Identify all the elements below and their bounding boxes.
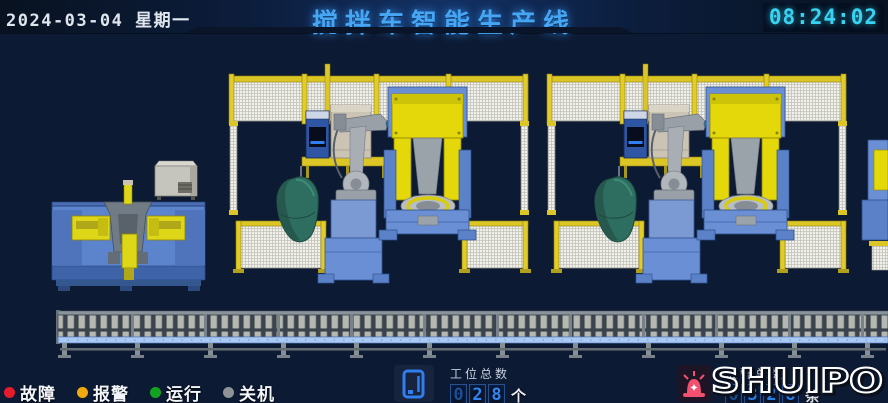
off-status-icon xyxy=(223,387,234,398)
frame-clamping-station xyxy=(52,180,205,291)
production-line-scene xyxy=(0,0,888,403)
control-cabinet xyxy=(155,161,197,200)
counter-unit: 个 xyxy=(511,385,526,403)
conveyor-legs xyxy=(58,343,874,358)
running-status-icon xyxy=(150,387,161,398)
legend-item-running: 运行 xyxy=(150,380,202,403)
counter-digit: 2 xyxy=(469,384,486,403)
terminal-icon xyxy=(394,365,434,402)
counter-digit: 0 xyxy=(450,384,467,403)
header-bar: 2024-03-04 星期一 搅拌车智能生产线 08:24:02 xyxy=(0,0,888,34)
logo-text: SHUIPO xyxy=(711,362,883,400)
partial-station-right xyxy=(862,140,888,270)
welding-cell-2 xyxy=(547,64,849,283)
alarm-status-icon xyxy=(77,387,88,398)
roller-conveyor xyxy=(56,310,888,358)
status-legend: 故障 报警 运行 关机 xyxy=(4,380,275,403)
legend-item-off: 关机 xyxy=(223,380,275,403)
station-counter-label: 工位总数 xyxy=(450,365,526,382)
legend-label: 运行 xyxy=(166,380,202,403)
counter-digit: 8 xyxy=(488,384,505,403)
clock-display: 08:24:02 xyxy=(763,3,884,32)
conveyor-rail xyxy=(58,337,888,343)
conveyor-rollers xyxy=(58,315,888,337)
shuipo-logo: SHUIPO SHUIPO xyxy=(708,362,888,402)
alarm-beacon-icon xyxy=(677,365,711,402)
conveyor-top-rail xyxy=(58,311,888,315)
legend-label: 报警 xyxy=(93,380,129,403)
clamp-left xyxy=(72,216,110,240)
legend-item-fault: 故障 xyxy=(4,380,56,403)
conveyor-seams xyxy=(131,314,864,338)
fault-status-icon xyxy=(4,387,15,398)
legend-label: 关机 xyxy=(239,380,275,403)
station-counter: 工位总数 0 2 8 个 xyxy=(394,365,526,403)
clamp-right xyxy=(147,216,185,240)
production-line-dashboard: 2024-03-04 星期一 搅拌车智能生产线 08:24:02 故障 报警 运… xyxy=(0,0,888,403)
status-bar: 故障 报警 运行 关机 xyxy=(0,358,888,403)
welding-cell-1 xyxy=(229,64,531,283)
page-title: 搅拌车智能生产线 xyxy=(0,3,888,40)
legend-label: 故障 xyxy=(20,380,56,403)
legend-item-alarm: 报警 xyxy=(77,380,129,403)
